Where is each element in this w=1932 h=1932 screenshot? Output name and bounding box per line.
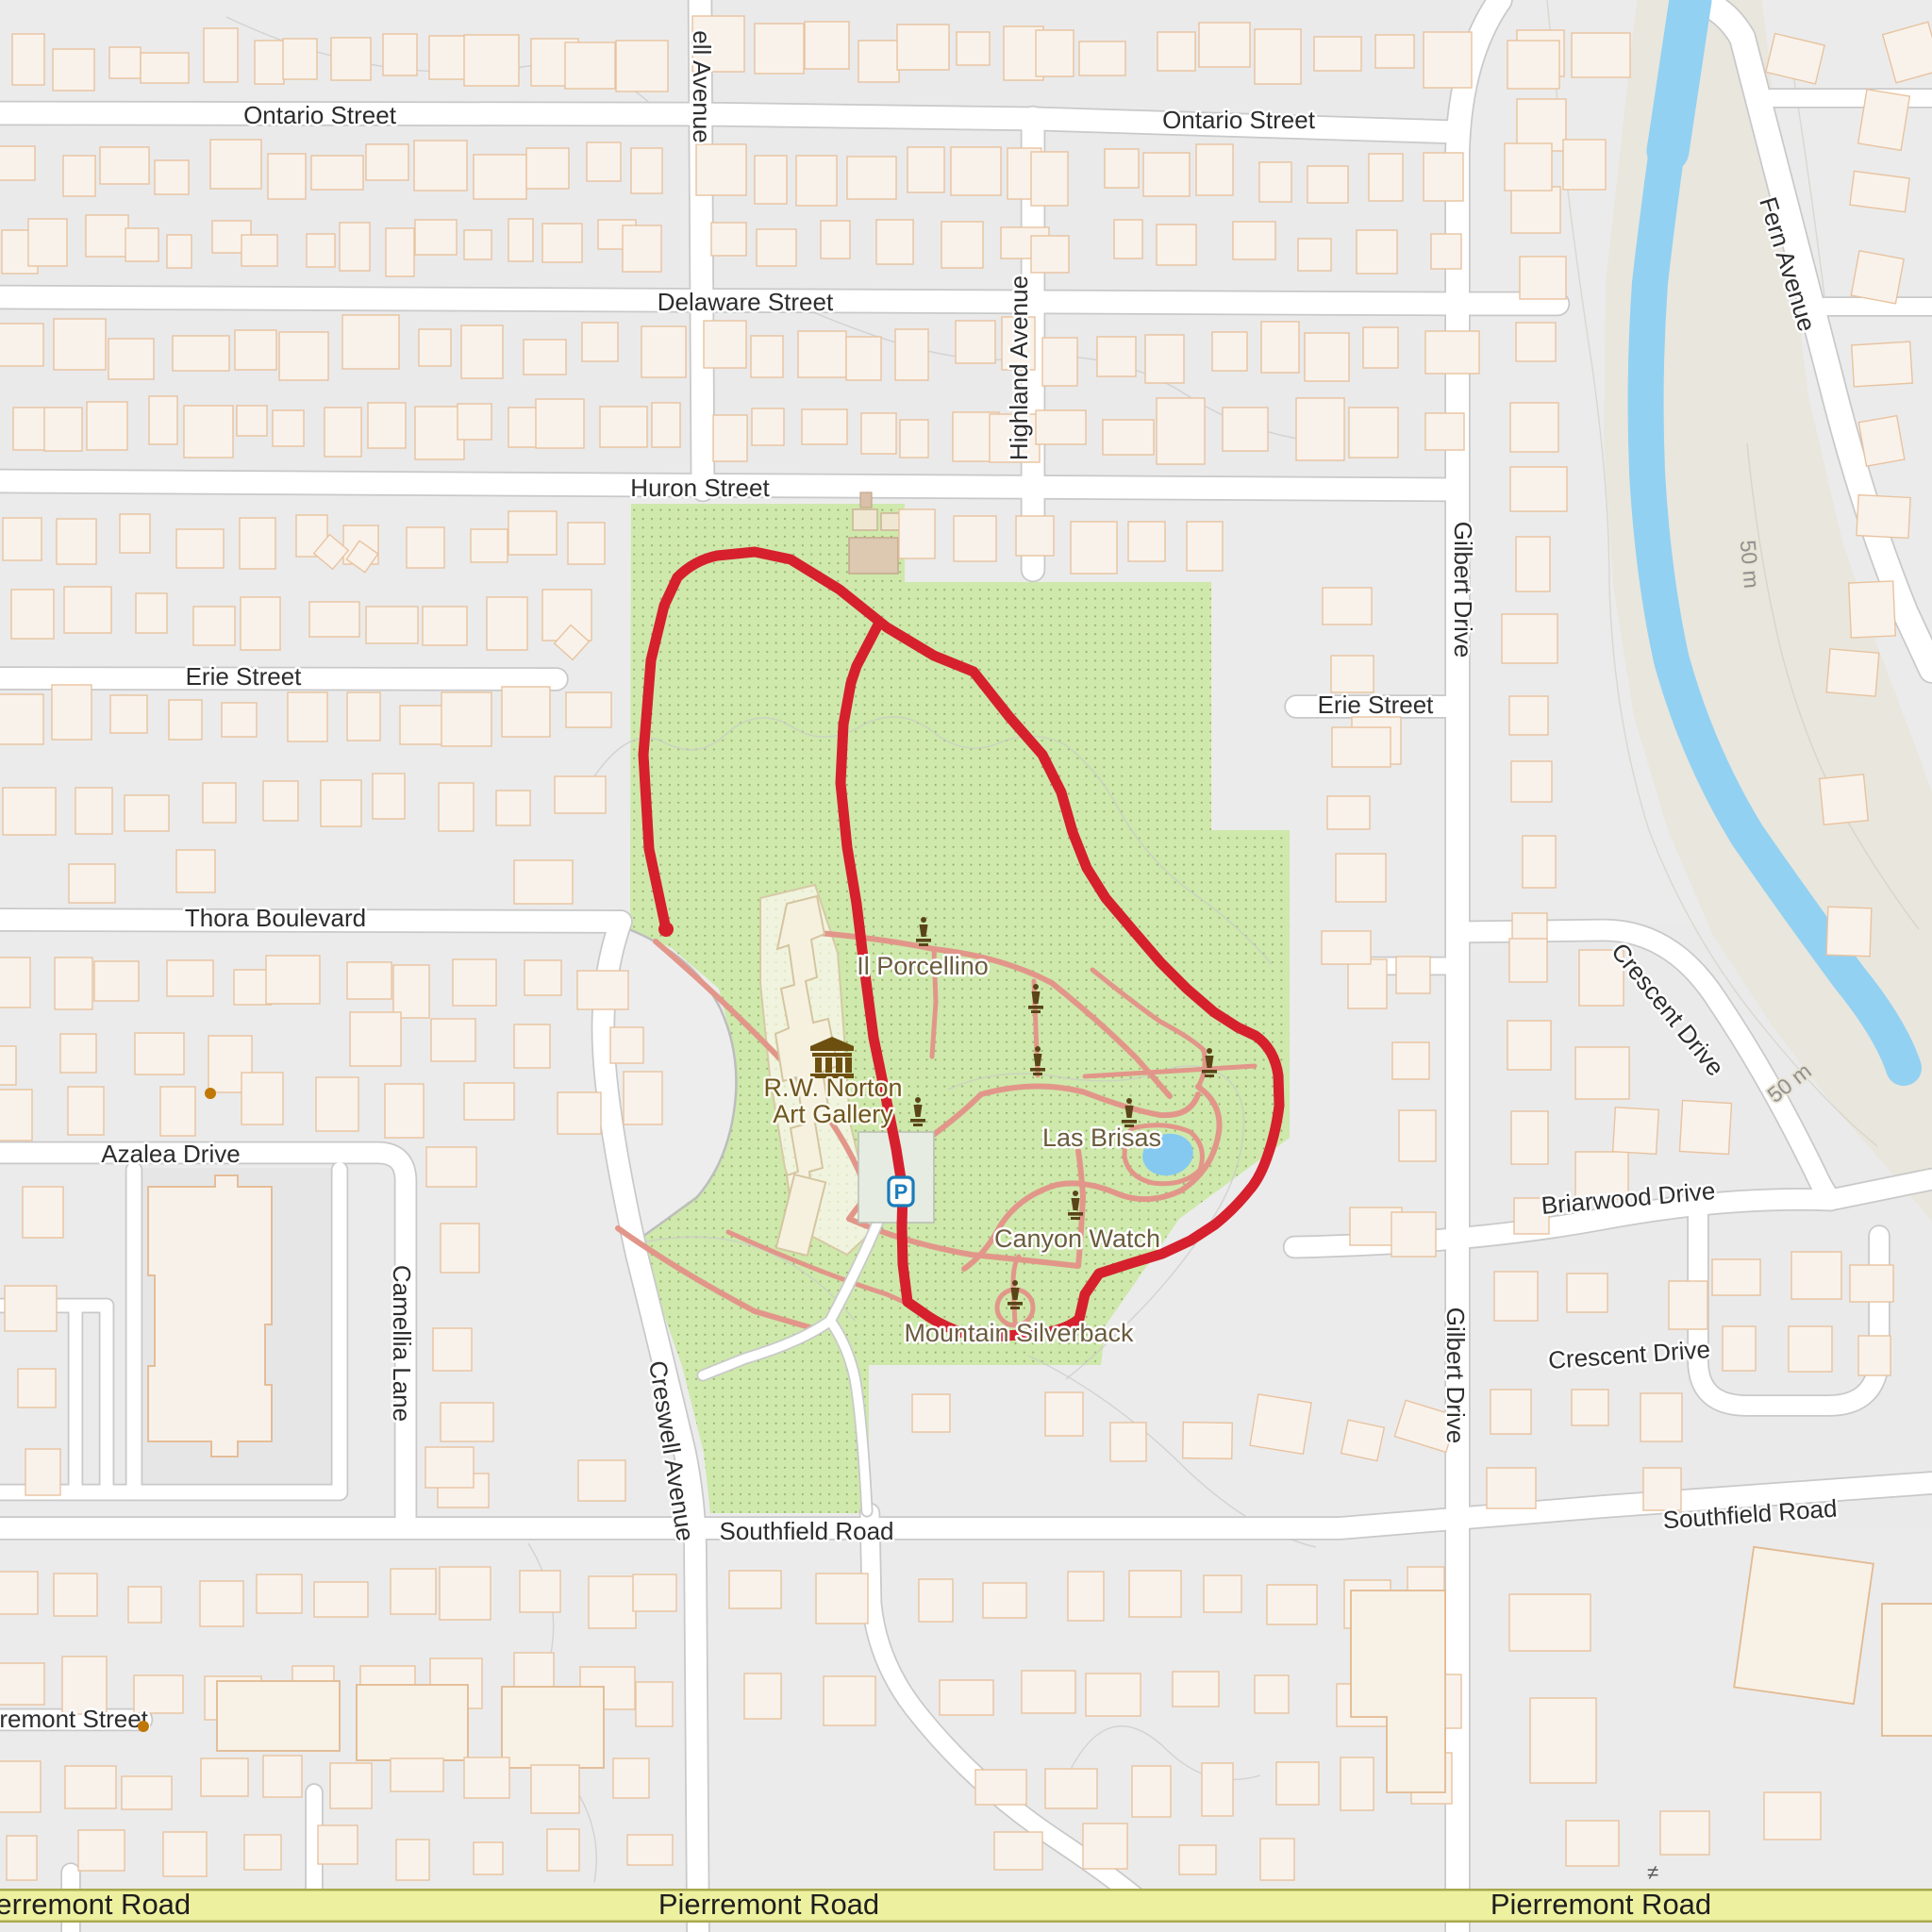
svg-text:Ontario Street: Ontario Street [1162,106,1316,134]
svg-text:Pierremont Road: Pierremont Road [0,1888,191,1921]
svg-text:50 m: 50 m [1736,539,1764,589]
svg-text:≠: ≠ [1647,1860,1658,1884]
svg-text:Las Brisas: Las Brisas [1042,1124,1161,1152]
svg-text:Azalea Drive: Azalea Drive [101,1140,240,1168]
svg-text:Thora Boulevard: Thora Boulevard [185,904,366,932]
svg-text:Pierremont Road: Pierremont Road [658,1888,879,1921]
svg-text:Gilbert Drive: Gilbert Drive [1449,522,1477,658]
svg-text:Pierremont Street: Pierremont Street [0,1705,149,1733]
svg-text:Delaware Street: Delaware Street [658,288,834,316]
svg-text:P: P [894,1180,908,1204]
svg-text:Erie Street: Erie Street [186,662,303,691]
svg-text:Camellia Lane: Camellia Lane [388,1265,416,1422]
svg-text:ell Avenue: ell Avenue [688,30,716,143]
svg-text:Ontario Street: Ontario Street [243,101,397,129]
svg-text:Il Porcellino: Il Porcellino [857,952,989,980]
svg-text:Huron Street: Huron Street [630,474,770,502]
svg-text:Art Gallery: Art Gallery [773,1100,893,1128]
svg-text:Mountain Silverback: Mountain Silverback [904,1319,1134,1347]
svg-text:Gilbert Drive: Gilbert Drive [1441,1307,1470,1443]
svg-text:Erie Street: Erie Street [1318,691,1435,719]
svg-text:R.W. Norton: R.W. Norton [763,1074,902,1102]
svg-text:Canyon Watch: Canyon Watch [994,1224,1160,1253]
svg-text:Southfield Road: Southfield Road [719,1517,893,1545]
svg-text:Highland Avenue: Highland Avenue [1005,275,1033,460]
svg-text:Pierremont Road: Pierremont Road [1491,1888,1711,1921]
